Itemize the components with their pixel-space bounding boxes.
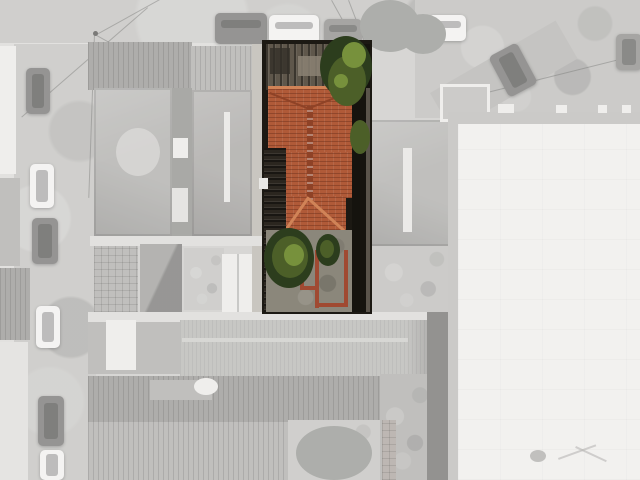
- far-left-roof-3: [0, 268, 30, 340]
- gray-tree-canopy: [400, 14, 446, 54]
- parapet-post: [622, 105, 631, 113]
- roof-ridge: [307, 106, 313, 200]
- water-tank: [194, 378, 218, 395]
- dark-pitched-outbuilding: [140, 244, 182, 314]
- far-left-roof-4: [0, 342, 28, 480]
- long-ridged-roof: [180, 320, 432, 376]
- white-ridge-right-house: [403, 148, 412, 232]
- white-roof-rect: [106, 320, 136, 370]
- far-left-roof-1: [0, 46, 16, 174]
- tree-highlight: [334, 74, 348, 88]
- roof-stain: [116, 128, 160, 176]
- terracotta-roof-lower: [284, 152, 354, 198]
- aerial-photo-canvas: [0, 0, 640, 480]
- boundary-wall-line: [366, 88, 370, 312]
- gap-structure: [173, 138, 188, 158]
- rear-shrub-highlight: [284, 244, 304, 266]
- parapet-post: [556, 105, 567, 113]
- parked-car-right-edge: [616, 34, 640, 70]
- parapet-post: [598, 105, 607, 113]
- gray-courtyard-tree: [296, 426, 372, 480]
- gap-structure: [172, 188, 188, 222]
- tree-highlight: [342, 42, 366, 68]
- parked-car: [26, 68, 50, 114]
- shed-dark-patch: [270, 48, 290, 74]
- grid-roof-outbuilding: [94, 246, 138, 312]
- warehouse-roof: [458, 124, 640, 480]
- parked-car: [32, 218, 58, 264]
- right-house-driveway: [368, 246, 454, 312]
- parked-suv: [215, 13, 267, 44]
- courtyard-light: [184, 248, 224, 310]
- roof-vent: [530, 450, 546, 462]
- white-gable-outbuilding: [222, 254, 252, 312]
- brick-textured-strip: [382, 420, 396, 480]
- subject-lot: [262, 40, 372, 314]
- long-roof-ridge-line: [182, 338, 408, 342]
- dark-alley: [427, 296, 449, 480]
- corrugated-strip-b: [190, 46, 254, 90]
- brick-wall-outline: [344, 250, 348, 306]
- small-tree: [350, 120, 370, 154]
- far-left-roof-2: [0, 178, 20, 266]
- parked-car: [30, 164, 54, 208]
- corrugated-strip-a: [88, 42, 192, 90]
- rear-shrub-small: [320, 240, 334, 258]
- parked-car: [40, 450, 64, 480]
- parked-car: [36, 306, 60, 348]
- corridor-box: [259, 178, 268, 189]
- white-ridge-east-house: [224, 112, 230, 202]
- parapet-post: [498, 104, 514, 113]
- hip-roof-house-east: [192, 90, 252, 236]
- parked-van: [38, 396, 64, 446]
- bottom-corrugated-roofs: [88, 422, 288, 480]
